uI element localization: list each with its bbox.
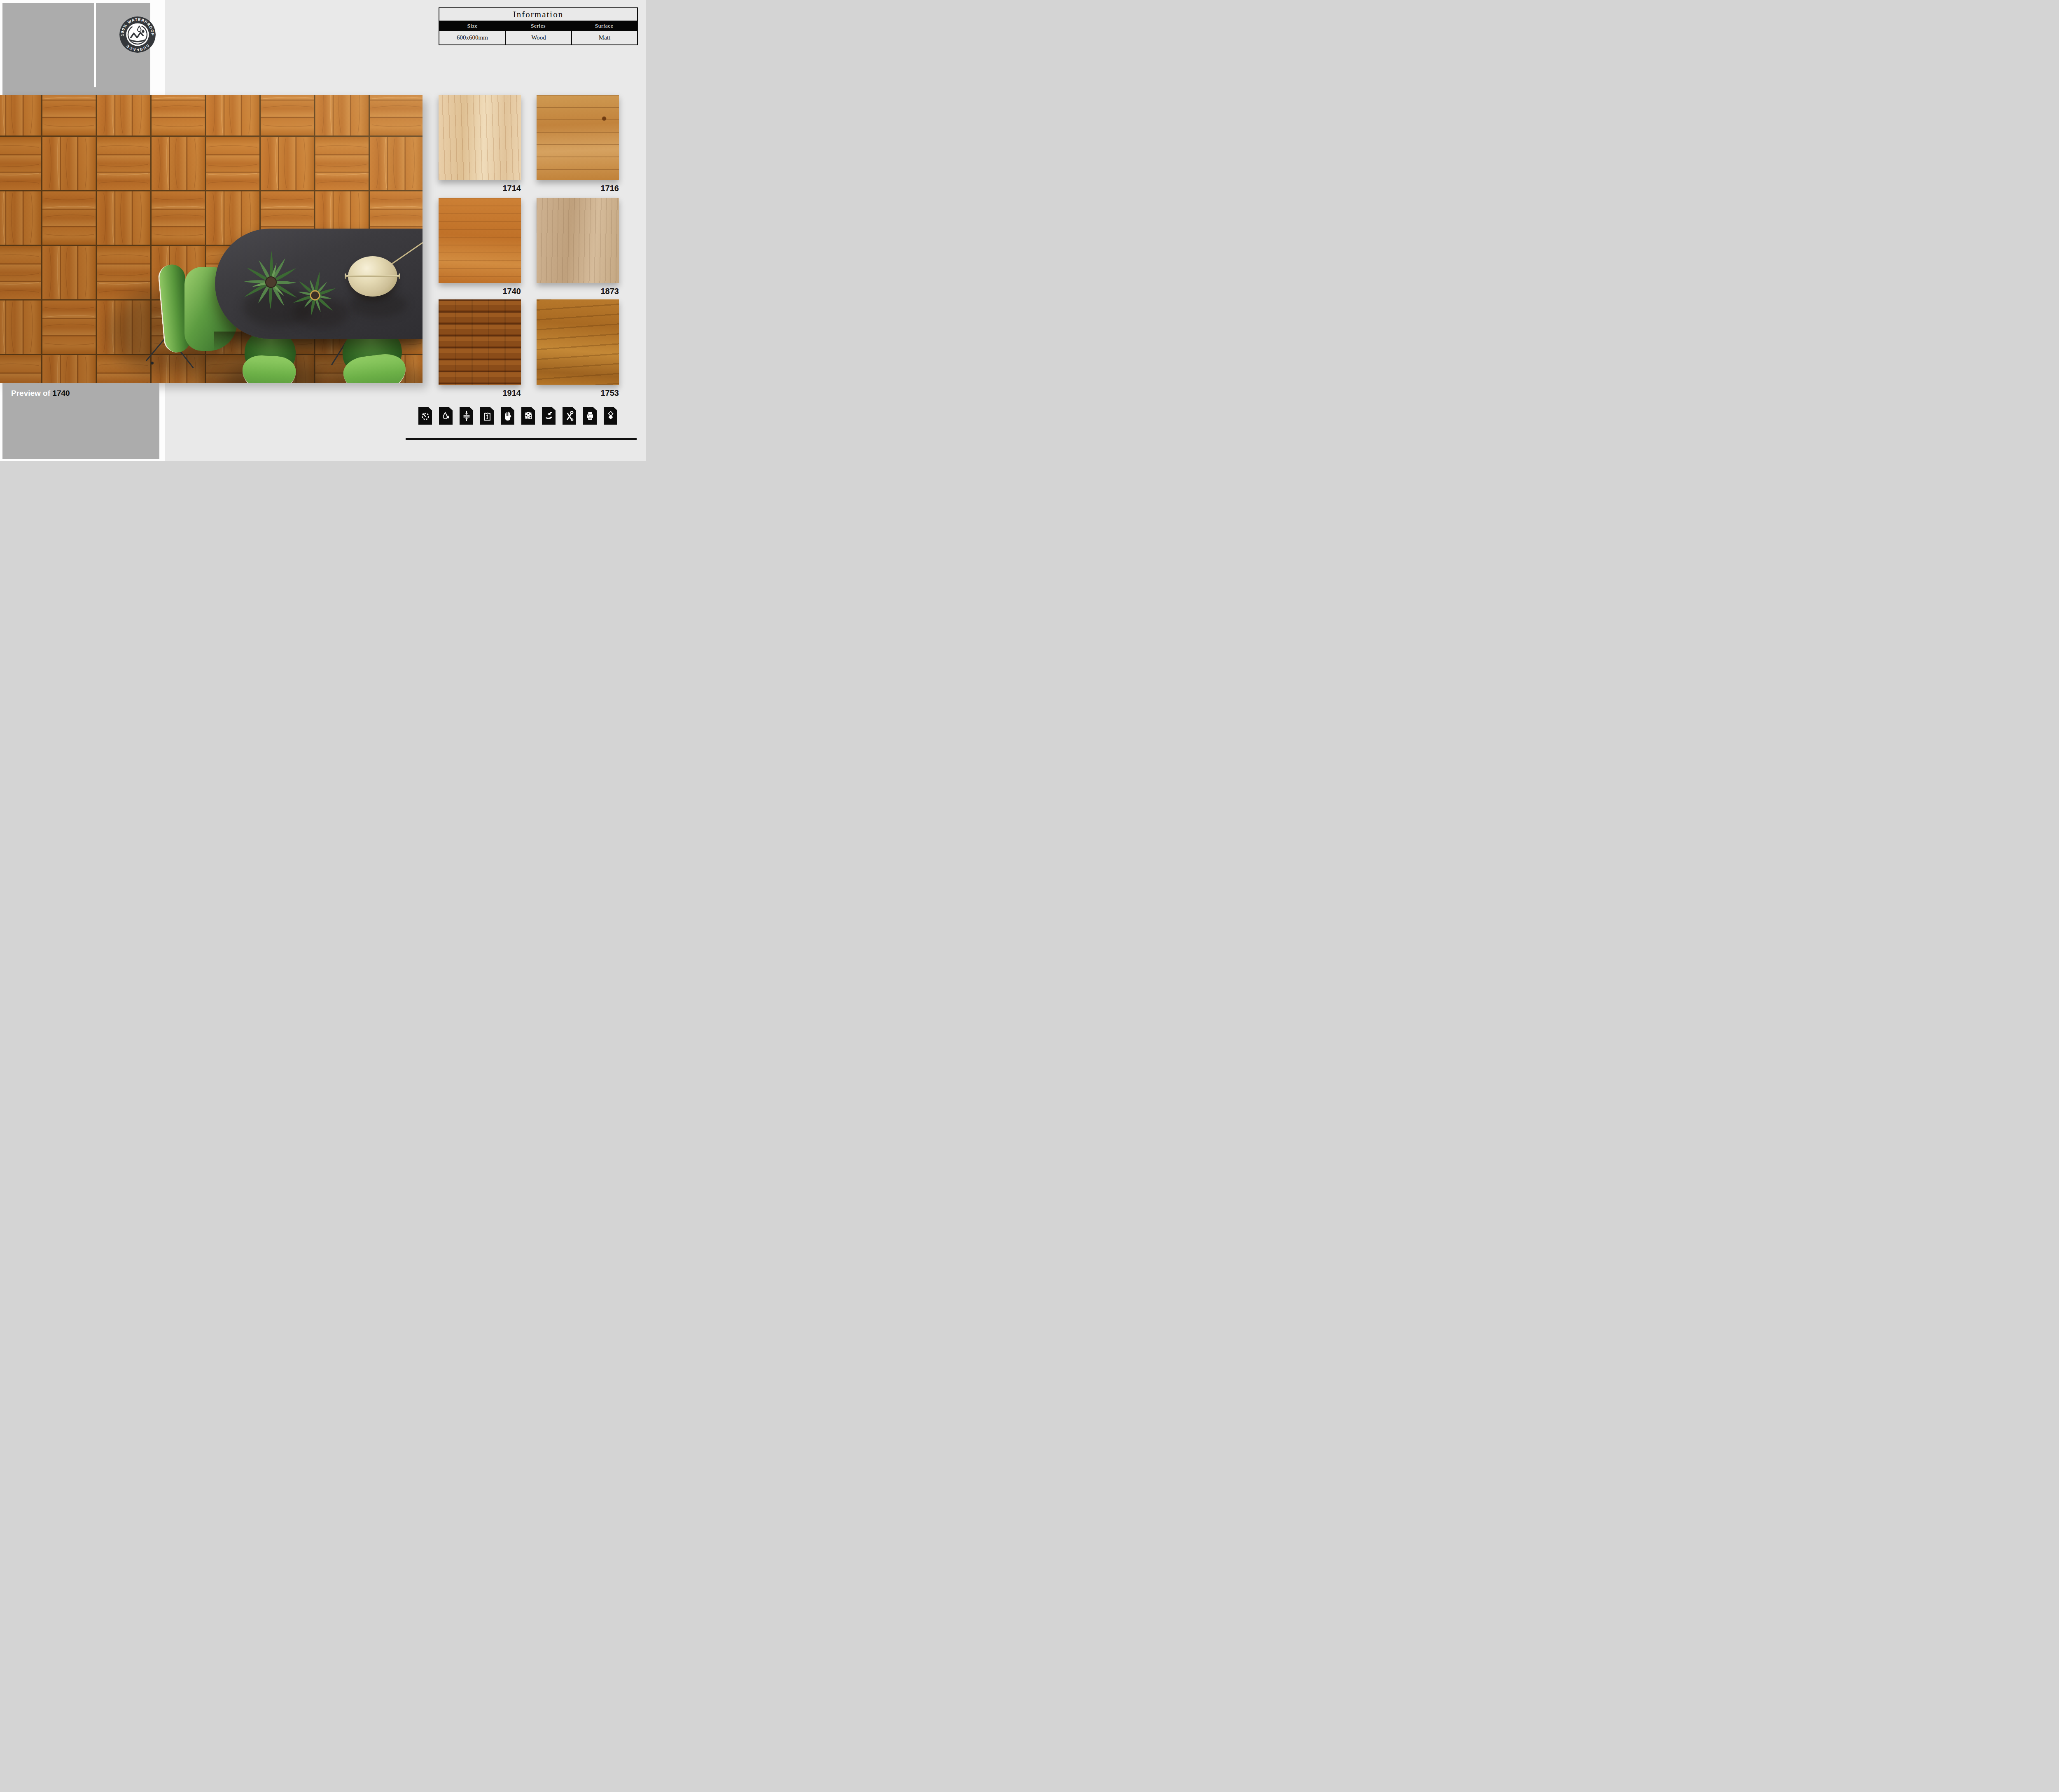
header-surface: Surface	[571, 21, 637, 31]
value-series: Wood	[505, 31, 571, 44]
information-value-row: 600x600mm Wood Matt	[439, 31, 637, 44]
lamp-bar-end	[399, 273, 400, 279]
swatch-code: 1873	[537, 287, 619, 296]
value-size: 600x600mm	[439, 31, 505, 44]
swatch-code: 1914	[439, 388, 521, 398]
value-surface: Matt	[571, 31, 637, 44]
compression-strength-icon	[460, 407, 473, 425]
preview-label: Preview of 1740	[11, 389, 70, 398]
swatch-code: 1714	[439, 184, 521, 193]
header-size: Size	[439, 21, 505, 31]
hand-icon	[501, 407, 514, 425]
information-title: Information	[439, 8, 637, 21]
fern-plant-2	[289, 270, 341, 321]
panel-divider-line	[94, 3, 96, 87]
left-chair-foot	[151, 362, 154, 364]
feature-icons-row	[418, 407, 617, 425]
tile-swatch-1714[interactable]	[439, 95, 521, 180]
swatch-code: 1753	[537, 388, 619, 398]
room-preview-image	[0, 95, 423, 383]
water-drops-icon	[439, 407, 453, 425]
layers-icon	[604, 407, 617, 425]
swatch-code: 1716	[537, 184, 619, 193]
water-absorption-icon	[480, 407, 494, 425]
footer-rule	[406, 438, 637, 440]
preview-label-prefix: Preview of	[11, 389, 50, 397]
design-grid-icon	[521, 407, 535, 425]
plant2-pot	[310, 291, 320, 300]
tools-icon	[563, 407, 576, 425]
tile-swatch-1873[interactable]	[537, 198, 619, 283]
tile-swatch-1753[interactable]	[537, 299, 619, 385]
tile-swatch-1914[interactable]	[439, 299, 521, 385]
waterproof-badge: 100% WATERPROOF SURFACE	[119, 16, 156, 54]
information-header-row: Size Series Surface	[439, 21, 637, 31]
lamp-bar	[346, 275, 399, 277]
tile-swatch-1716[interactable]	[537, 95, 619, 180]
information-table: Information Size Series Surface 600x600m…	[439, 7, 638, 45]
badge-inner-disc	[126, 23, 149, 46]
header-series: Series	[505, 21, 571, 31]
catalog-page: 100% WATERPROOF SURFACE	[0, 0, 646, 461]
printer-icon	[583, 407, 597, 425]
lamp-bar-end	[345, 273, 346, 279]
eco-friendly-icon	[542, 407, 556, 425]
tile-swatch-1740[interactable]	[439, 198, 521, 283]
swatch-code: 1740	[439, 287, 521, 296]
plant1-pot	[266, 277, 276, 287]
preview-label-code: 1740	[52, 389, 70, 397]
gauge-icon	[418, 407, 432, 425]
